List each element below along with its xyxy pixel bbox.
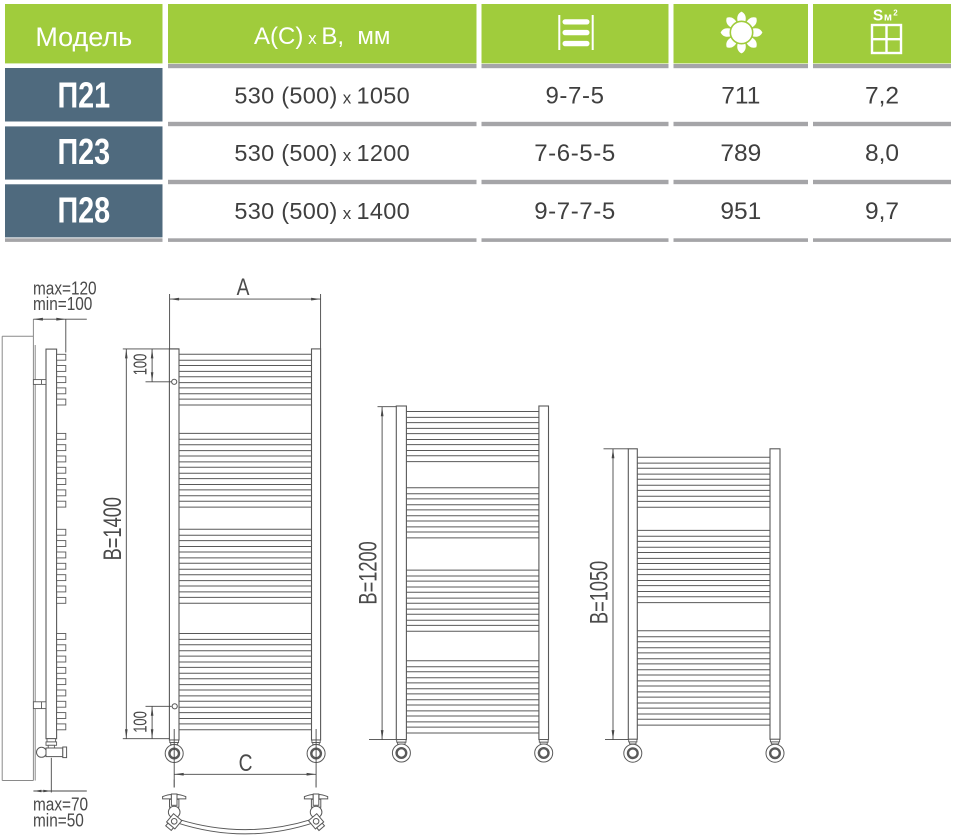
svg-text:9-7-7-5: 9-7-7-5 (534, 198, 616, 225)
svg-text:7,2: 7,2 (865, 83, 899, 110)
svg-text:м: м (884, 12, 892, 24)
svg-text:530 (500) х 1050: 530 (500) х 1050 (234, 83, 410, 109)
svg-text:Модель: Модель (35, 22, 132, 52)
svg-text:П28: П28 (57, 189, 110, 230)
svg-text:9,7: 9,7 (865, 198, 899, 225)
svg-text:100: 100 (131, 354, 151, 376)
svg-text:П21: П21 (57, 74, 110, 115)
svg-text:B=1400: B=1400 (98, 497, 127, 560)
svg-text:2: 2 (893, 9, 898, 18)
svg-text:min=50: min=50 (33, 810, 84, 831)
svg-text:951: 951 (720, 198, 761, 225)
svg-text:C: C (239, 749, 253, 777)
svg-text:S: S (873, 8, 883, 25)
svg-text:A: A (237, 273, 250, 301)
svg-text:B=1200: B=1200 (354, 541, 383, 604)
svg-text:B=1050: B=1050 (585, 561, 614, 624)
svg-text:8,0: 8,0 (865, 140, 899, 167)
svg-text:789: 789 (720, 140, 761, 167)
svg-text:П23: П23 (57, 131, 110, 172)
svg-text:А(С) х В, мм: А(С) х В, мм (254, 23, 390, 50)
svg-text:7-6-5-5: 7-6-5-5 (534, 140, 616, 167)
svg-text:530 (500) х 1400: 530 (500) х 1400 (234, 198, 410, 224)
svg-text:9-7-5: 9-7-5 (545, 83, 604, 110)
svg-text:530 (500) х 1200: 530 (500) х 1200 (234, 140, 410, 166)
svg-text:711: 711 (721, 83, 760, 110)
svg-text:min=100: min=100 (33, 294, 92, 315)
svg-text:100: 100 (131, 711, 151, 733)
